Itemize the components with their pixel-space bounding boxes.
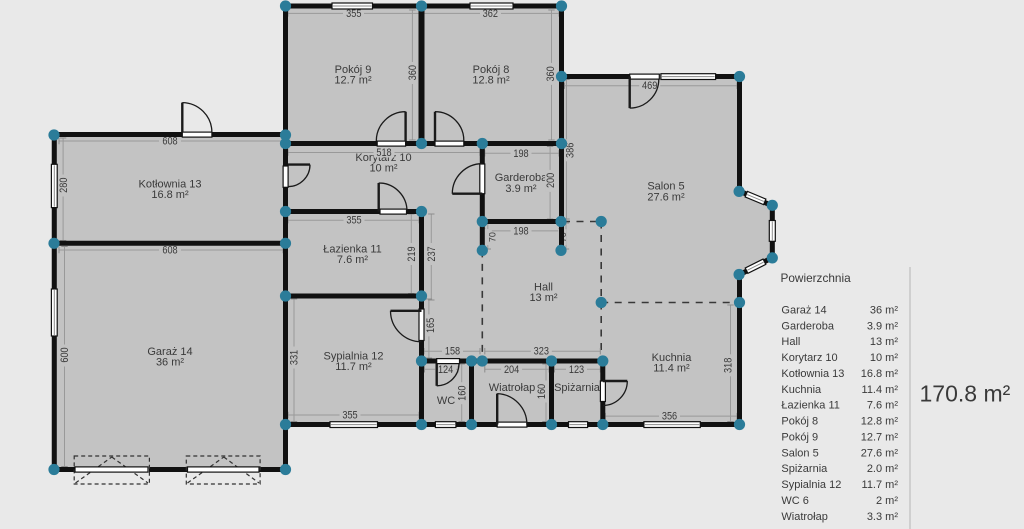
svg-text:355: 355 [342,410,357,422]
svg-text:2.0 m²: 2.0 m² [867,463,899,475]
svg-text:356: 356 [662,411,677,423]
svg-text:12.7 m²: 12.7 m² [861,432,899,444]
svg-text:11.4 m²: 11.4 m² [653,363,690,375]
svg-text:Korytarz 10: Korytarz 10 [781,352,837,364]
svg-text:Spiżarnia: Spiżarnia [781,463,828,475]
svg-text:204: 204 [504,364,519,376]
svg-text:12.7 m²: 12.7 m² [334,75,372,87]
svg-text:237: 237 [426,246,438,261]
svg-text:280: 280 [58,178,70,193]
svg-text:469: 469 [642,80,657,92]
svg-text:7.6 m²: 7.6 m² [867,400,899,412]
svg-text:27.6 m²: 27.6 m² [647,192,685,204]
svg-text:3.9 m²: 3.9 m² [505,183,537,195]
svg-text:Kotłownia 13: Kotłownia 13 [781,368,844,380]
svg-text:11.4 m²: 11.4 m² [862,384,899,396]
svg-text:Łazienka 11: Łazienka 11 [781,400,840,412]
svg-text:123: 123 [569,364,584,376]
svg-text:13 m²: 13 m² [870,336,898,348]
svg-text:323: 323 [534,346,549,358]
svg-text:160: 160 [536,384,548,399]
svg-text:518: 518 [376,147,391,159]
svg-text:608: 608 [162,136,177,148]
svg-text:Spiżarnia: Spiżarnia [554,382,601,394]
svg-text:Salon 5: Salon 5 [781,447,818,459]
svg-text:Kuchnia: Kuchnia [781,384,822,396]
svg-text:12.8 m²: 12.8 m² [472,75,510,87]
svg-text:198: 198 [513,225,528,237]
svg-text:355: 355 [346,215,361,227]
svg-text:Sypialnia 12: Sypialnia 12 [781,479,841,491]
svg-text:Wiatrołap: Wiatrołap [781,511,827,523]
svg-text:158: 158 [445,346,460,358]
svg-text:Pokój 9: Pokój 9 [781,432,818,444]
svg-text:12.8 m²: 12.8 m² [861,416,899,428]
svg-text:Garderoba: Garderoba [781,320,834,332]
svg-text:170.8 m²: 170.8 m² [920,381,1011,407]
svg-text:3.3 m²: 3.3 m² [867,511,899,523]
svg-text:10 m²: 10 m² [369,163,397,175]
svg-text:3.9 m²: 3.9 m² [867,320,899,332]
svg-text:124: 124 [438,364,453,376]
svg-text:Wiatrołap: Wiatrołap [489,382,535,394]
svg-text:70: 70 [488,232,498,242]
svg-text:27.6 m²: 27.6 m² [861,447,899,459]
svg-text:Garaż 14: Garaż 14 [781,304,826,316]
svg-text:16.8 m²: 16.8 m² [151,189,189,201]
svg-text:7.6 m²: 7.6 m² [337,254,369,266]
svg-text:36 m²: 36 m² [870,304,898,316]
svg-text:2 m²: 2 m² [876,495,898,507]
svg-text:Pokój 8: Pokój 8 [781,416,818,428]
svg-text:16.8 m²: 16.8 m² [861,368,899,380]
svg-text:200: 200 [545,173,557,188]
svg-text:160: 160 [456,386,468,401]
svg-text:36 m²: 36 m² [156,357,184,369]
svg-text:355: 355 [346,8,361,20]
svg-text:219: 219 [406,246,418,261]
svg-text:608: 608 [162,245,177,257]
svg-text:WC: WC [437,395,455,407]
svg-text:11.7 m²: 11.7 m² [862,479,899,491]
svg-text:362: 362 [483,8,498,20]
svg-text:318: 318 [722,358,734,373]
svg-text:600: 600 [59,347,71,362]
svg-text:Hall: Hall [781,336,800,348]
svg-text:13 m²: 13 m² [529,292,557,304]
svg-text:11.7 m²: 11.7 m² [335,361,372,373]
svg-text:Powierzchnia: Powierzchnia [781,271,852,285]
svg-text:360: 360 [545,66,557,81]
svg-text:WC 6: WC 6 [781,495,809,507]
svg-text:10 m²: 10 m² [870,352,898,364]
svg-text:360: 360 [407,65,419,80]
svg-text:331: 331 [289,350,301,365]
svg-text:165: 165 [425,318,437,333]
svg-text:198: 198 [513,148,528,160]
